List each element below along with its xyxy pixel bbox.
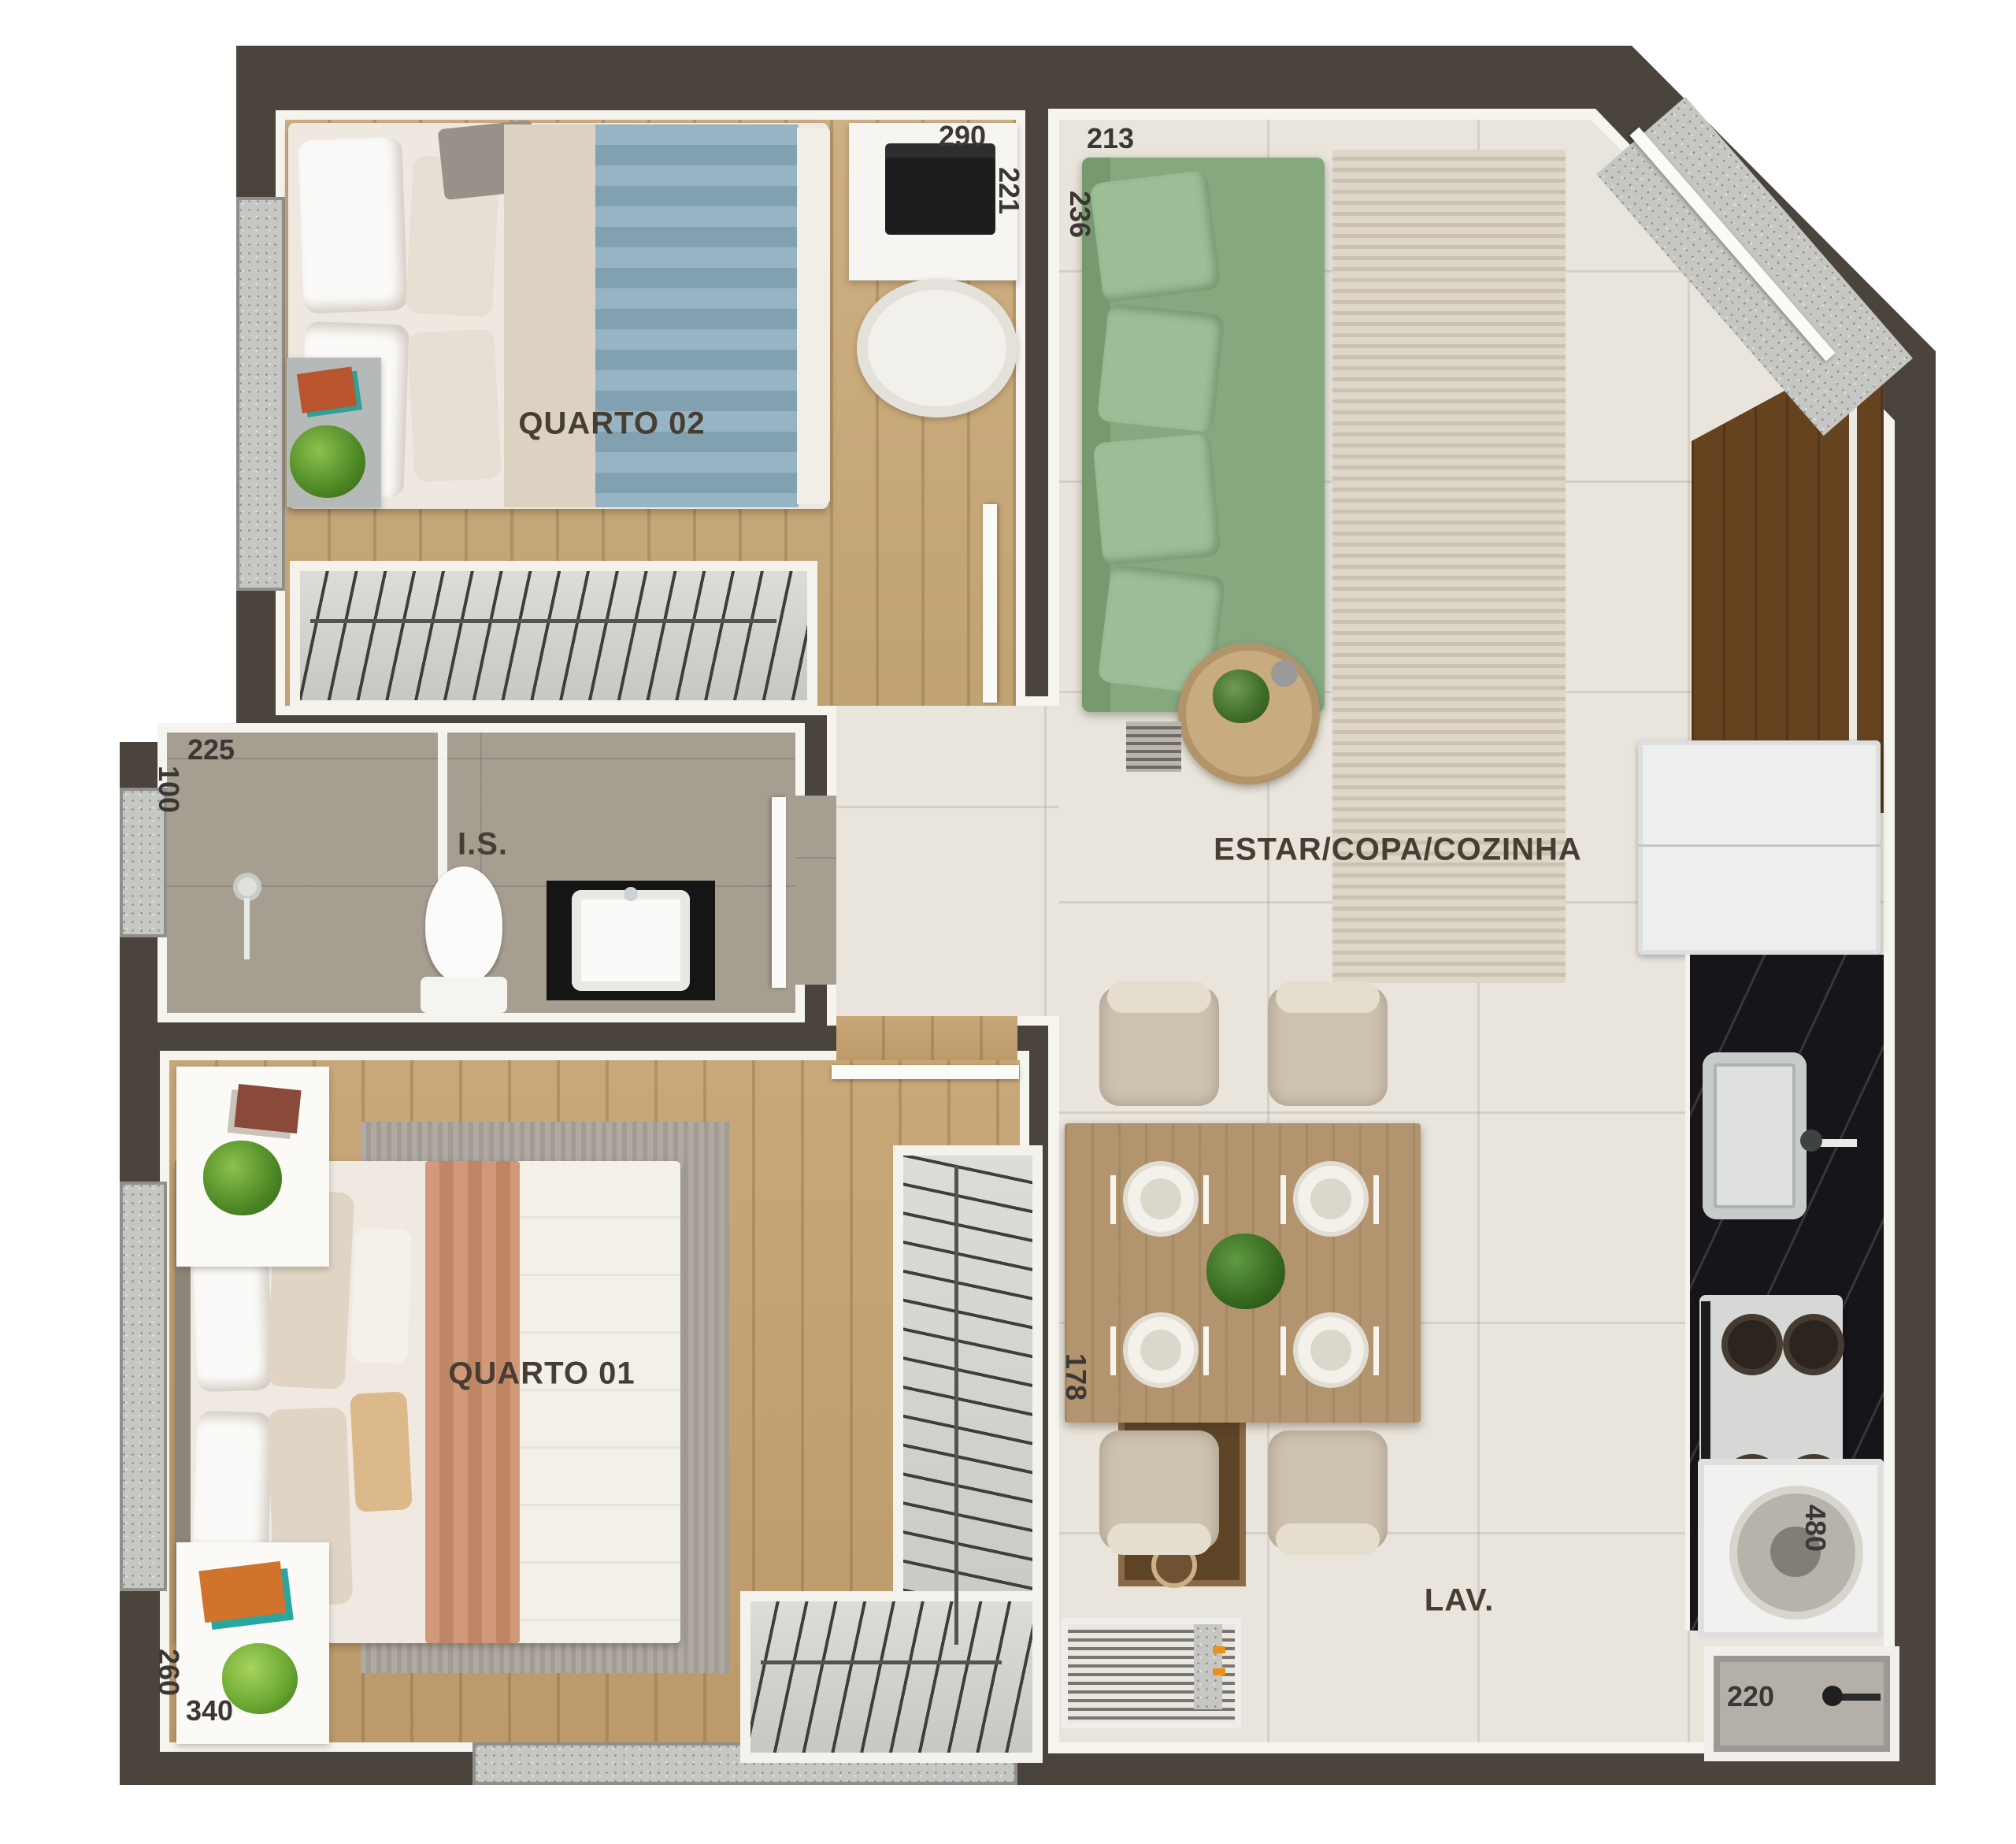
vanity-sink — [572, 890, 690, 991]
plant — [290, 425, 365, 498]
fridge-door-gap — [1638, 844, 1881, 847]
bed1-duvet — [520, 1161, 680, 1643]
stove-burner — [1783, 1314, 1844, 1375]
room-label-quarto02: QUARTO 02 — [518, 406, 705, 442]
toilet-tank — [421, 977, 507, 1013]
room-label-laundry: LAV. — [1425, 1583, 1494, 1619]
vanity-faucet — [624, 887, 638, 901]
bed2-pillow — [298, 137, 408, 314]
laptop — [885, 143, 995, 235]
door-quarto01 — [832, 1065, 1019, 1079]
stove-burner — [1721, 1314, 1783, 1375]
dimension-340: 340 — [186, 1694, 233, 1727]
window-quarto01-side — [120, 1182, 167, 1591]
floor-plan: QUARTO 02 QUARTO 01 I.S. ESTAR/COPA/COZI… — [0, 0, 2016, 1844]
sofa-cushion — [1089, 169, 1221, 302]
sofa-cushion — [1092, 433, 1221, 566]
dimension-221: 221 — [992, 167, 1025, 214]
clothes-rack-quarto02 — [290, 561, 817, 711]
bathroom-door-threshold — [795, 796, 836, 985]
coffee-table-item — [1271, 660, 1298, 687]
coffee-table-plant — [1213, 670, 1269, 723]
room-label-living: ESTAR/COPA/COZINHA — [1214, 833, 1582, 868]
bed1-pillow — [350, 1228, 412, 1364]
bed1-pillow-accent — [350, 1391, 413, 1512]
dimension-225: 225 — [187, 733, 235, 766]
table-centerpiece — [1206, 1234, 1285, 1309]
bed2-sheet — [504, 124, 597, 507]
plant — [203, 1141, 282, 1215]
sofa-cushion — [1097, 303, 1225, 433]
bed1-terracotta-blanket — [425, 1161, 520, 1643]
bed2-foot — [797, 128, 830, 504]
dimension-100: 100 — [152, 766, 185, 813]
closet-quarto01-bottom — [740, 1591, 1043, 1763]
dining-chair — [1099, 1430, 1219, 1550]
floor-hall — [836, 706, 1059, 1016]
dimension-220: 220 — [1727, 1680, 1774, 1713]
rack-rail — [310, 619, 776, 623]
louver-clips — [1213, 1646, 1225, 1653]
desk-chair — [857, 279, 1017, 417]
sink-faucet — [1800, 1130, 1822, 1152]
door-quarto02 — [983, 504, 997, 703]
quarto01-door-threshold — [836, 1016, 1017, 1060]
dining-chair — [1268, 1430, 1388, 1550]
toilet-bowl — [425, 866, 502, 983]
books — [234, 1084, 301, 1133]
floor-vent — [1126, 722, 1181, 772]
kitchen-sink — [1703, 1052, 1807, 1219]
dining-chair — [1099, 986, 1219, 1106]
dimension-260: 260 — [152, 1649, 185, 1696]
louver-side — [1194, 1624, 1222, 1709]
cabinet-handle — [1849, 377, 1857, 794]
door-bathroom — [772, 797, 786, 988]
place-setting — [1293, 1312, 1369, 1388]
books — [198, 1561, 286, 1623]
shower-arm — [244, 898, 250, 959]
dimension-480: 480 — [1799, 1505, 1832, 1552]
fridge — [1638, 740, 1881, 955]
room-label-bathroom: I.S. — [458, 827, 508, 863]
closet-rail — [761, 1660, 1002, 1664]
plant — [222, 1643, 298, 1714]
closet-rail — [954, 1166, 958, 1645]
dimension-290: 290 — [939, 120, 986, 153]
tank-faucet — [1822, 1686, 1843, 1706]
shower-head — [233, 873, 261, 901]
room-label-quarto01: QUARTO 01 — [448, 1356, 635, 1392]
books — [297, 366, 357, 413]
dimension-178: 178 — [1059, 1353, 1092, 1401]
place-setting — [1123, 1161, 1199, 1237]
dining-chair — [1268, 986, 1388, 1106]
dimension-213: 213 — [1087, 122, 1134, 155]
place-setting — [1123, 1312, 1199, 1388]
dimension-236: 236 — [1063, 191, 1096, 238]
place-setting — [1293, 1161, 1369, 1237]
bed2-blue-blanket — [595, 124, 799, 507]
window-quarto02 — [236, 197, 285, 591]
bed2-pillow — [407, 328, 502, 482]
